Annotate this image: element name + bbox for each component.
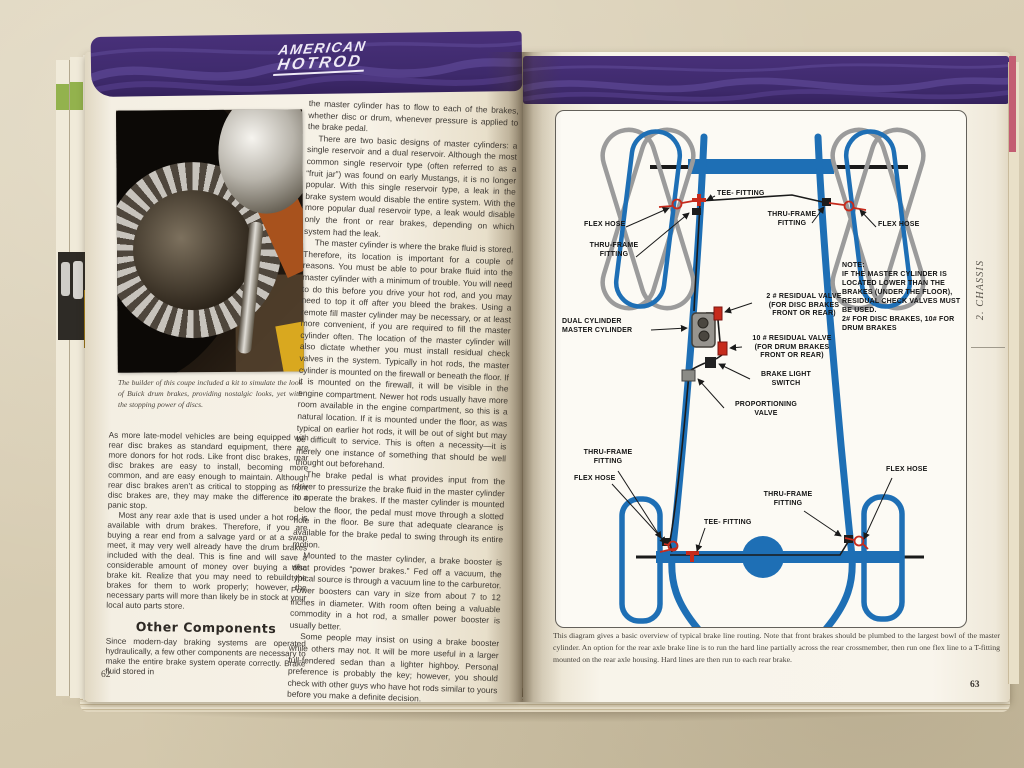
page-edge-green-band <box>70 82 83 110</box>
paragraph: The brake pedal is what provides input f… <box>292 469 505 558</box>
diagram-note: NOTE: IF THE MASTER CYLINDER IS LOCATED … <box>842 261 962 333</box>
paragraph: The master cylinder is where the brake f… <box>295 237 513 476</box>
label-thru-frame-rear-left: THRU-FRAME FITTING <box>576 449 640 466</box>
right-page: TEE- FITTING FLEX HOSE THRU-FRAME FITTIN… <box>523 52 1010 702</box>
left-page: AMERICAN HOTROD The builder of this coup… <box>85 52 522 702</box>
label-thru-frame-rear-right: THRU-FRAME FITTING <box>756 491 820 508</box>
paragraph: Some people may insist on using a brake … <box>287 631 499 705</box>
label-tee-front: TEE- FITTING <box>717 190 765 199</box>
book-photo-scene: AMERICAN HOTROD The builder of this coup… <box>0 0 1024 768</box>
page-number-right: 63 <box>970 680 980 690</box>
brake-light-switch <box>705 357 716 368</box>
brake-diagram-drawing <box>556 111 966 627</box>
page-edge-green-band <box>56 84 69 110</box>
body-text-column-right: the master cylinder has to flow to each … <box>287 98 519 705</box>
wave-ornament <box>523 56 1009 104</box>
proportioning-valve <box>682 370 695 381</box>
photo-caption: The builder of this coupe included a kit… <box>118 377 302 410</box>
front-wheel-left <box>596 123 700 314</box>
label-flex-hose-front-left: FLEX HOSE <box>584 221 625 230</box>
page-edge-strip <box>70 57 84 698</box>
page-edge-photo-fragment <box>58 252 85 340</box>
paragraph: Most any rear axle that is used under a … <box>106 511 307 614</box>
residual-valve-10 <box>718 342 727 355</box>
label-flex-hose-rear-right: FLEX HOSE <box>886 466 927 475</box>
brake-diagram-box: TEE- FITTING FLEX HOSE THRU-FRAME FITTIN… <box>555 110 967 628</box>
page-number-left: 62 <box>101 670 111 680</box>
label-brake-light-switch: BRAKE LIGHT SWITCH <box>748 371 824 388</box>
pink-page-edge <box>1009 56 1016 152</box>
drum-center <box>133 190 254 311</box>
title-band-left: AMERICAN HOTROD <box>91 31 523 97</box>
differential <box>742 536 784 578</box>
car-thumbnail <box>73 261 83 299</box>
paragraph: There are two basic designs of master cy… <box>304 133 518 245</box>
title-band-right <box>523 56 1009 104</box>
label-tee-rear: TEE- FITTING <box>704 519 752 528</box>
label-flex-hose-front-right: FLEX HOSE <box>878 221 919 230</box>
label-residual-valve-10: 10 # RESIDUAL VALVE (FOR DRUM BRAKES FRO… <box>740 335 844 361</box>
label-master-cylinder: DUAL CYLINDER MASTER CYLINDER <box>562 318 654 335</box>
paragraph: Since modern-day braking systems are ope… <box>105 637 306 680</box>
paragraph: As more late-model vehicles are being eq… <box>108 431 309 514</box>
label-proportioning-valve: PROPORTIONING VALVE <box>722 401 810 418</box>
page-edge-right <box>1008 62 1019 684</box>
chapter-side-tab: 2. CHASSIS <box>975 238 986 342</box>
car-thumbnail <box>61 262 70 296</box>
label-thru-frame-front-left: THRU-FRAME FITTING <box>582 242 646 259</box>
master-cylinder-port <box>698 318 708 328</box>
label-flex-hose-rear-left: FLEX HOSE <box>574 475 615 484</box>
residual-valve-2 <box>714 307 722 320</box>
label-thru-frame-front-right: THRU-FRAME FITTING <box>760 211 824 228</box>
front-crossmember <box>688 159 834 174</box>
brake-wheel-photo <box>116 109 304 372</box>
diagram-caption: This diagram gives a basic overview of t… <box>553 630 1000 665</box>
page-edge-strip <box>56 60 70 696</box>
body-text-column-lower-left: As more late-model vehicles are being eq… <box>105 431 308 686</box>
label-residual-valve-2: 2 # RESIDUAL VALVE (FOR DISC BRAKES FRON… <box>752 293 856 319</box>
section-heading: Other Components <box>106 620 306 637</box>
rear-wheel-left <box>622 499 660 621</box>
master-cylinder-port <box>699 331 709 341</box>
paragraph: Mounted to the master cylinder, a brake … <box>289 550 502 639</box>
side-tab-rule <box>971 347 1005 348</box>
